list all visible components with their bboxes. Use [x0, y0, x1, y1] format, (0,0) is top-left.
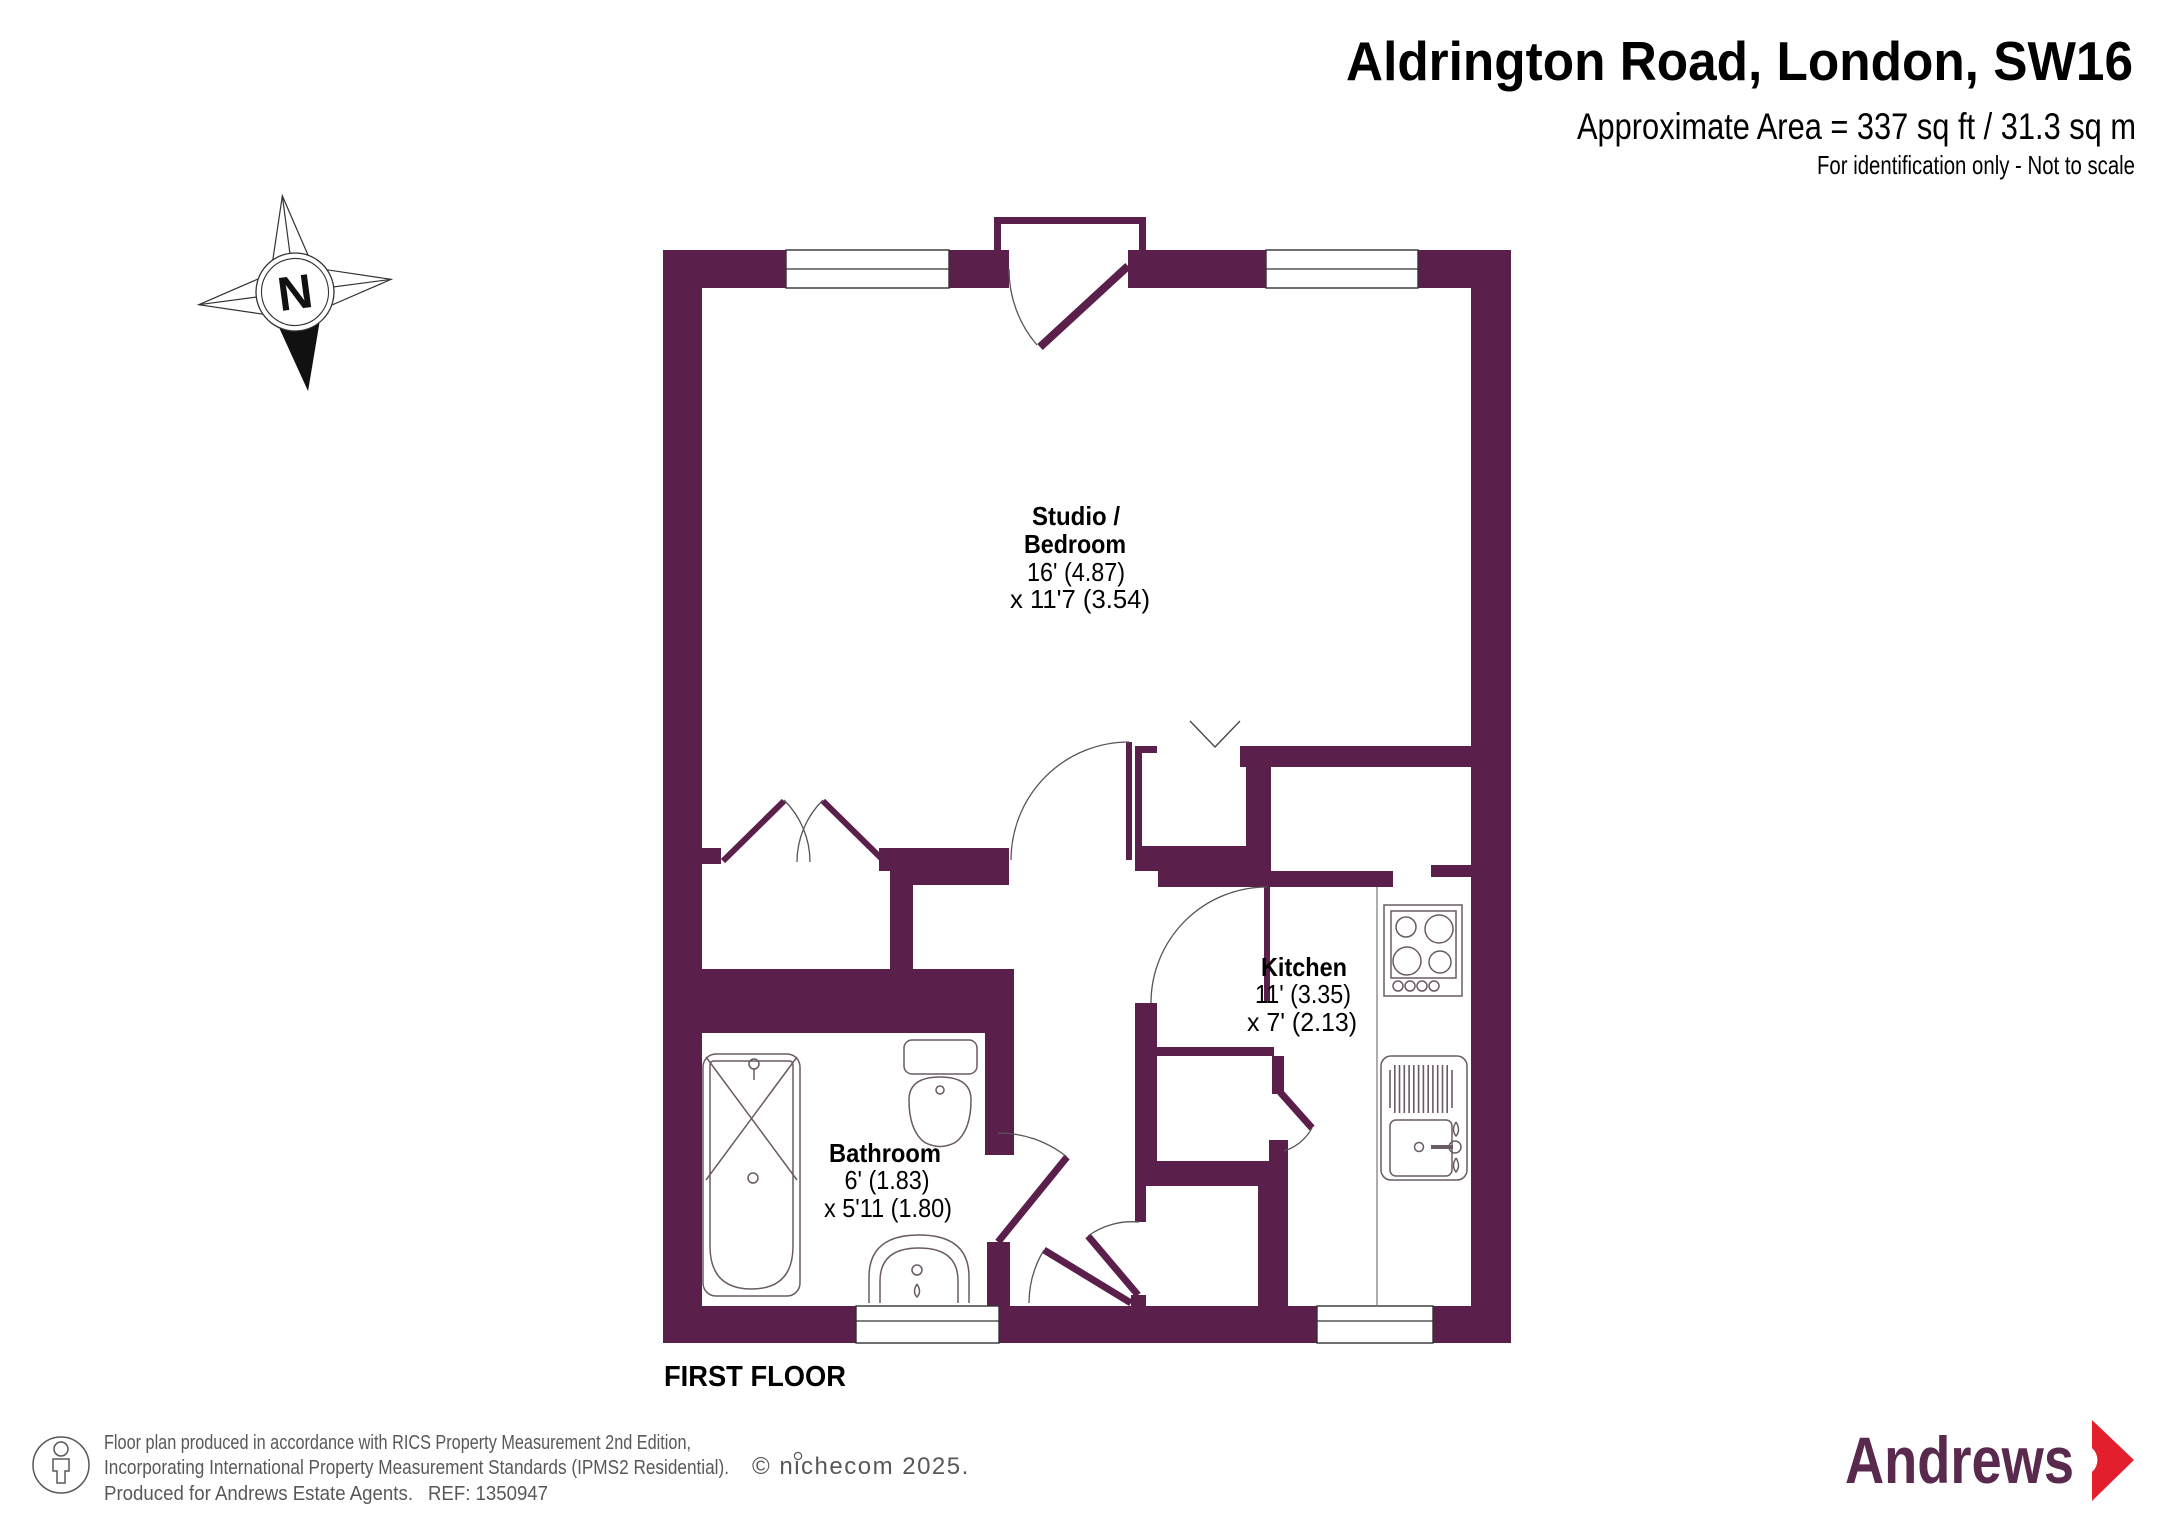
svg-text:REF: 1350947: REF: 1350947	[428, 1483, 548, 1505]
svg-text:Floor plan produced in accorda: Floor plan produced in accordance with R…	[104, 1432, 691, 1454]
svg-text:6' (1.83): 6' (1.83)	[845, 1165, 930, 1195]
svg-text:N: N	[275, 265, 316, 322]
svg-text:Andrews: Andrews	[1845, 1423, 2074, 1497]
svg-text:Incorporating International Pr: Incorporating International Property Mea…	[104, 1457, 729, 1479]
svg-text:Bathroom: Bathroom	[829, 1138, 941, 1168]
svg-text:16' (4.87): 16' (4.87)	[1027, 557, 1125, 587]
svg-text:Produced for Andrews Estate Ag: Produced for Andrews Estate Agents.	[104, 1483, 413, 1505]
svg-text:Aldrington Road, London, SW16: Aldrington Road, London, SW16	[1346, 30, 2133, 92]
svg-text:Studio /: Studio /	[1032, 501, 1120, 531]
svg-text:x 7' (2.13): x 7' (2.13)	[1247, 1007, 1357, 1037]
svg-text:FIRST FLOOR: FIRST FLOOR	[664, 1361, 846, 1393]
svg-text:© nichecom 2025.: © nichecom 2025.	[752, 1453, 970, 1480]
svg-text:Kitchen: Kitchen	[1261, 952, 1347, 982]
svg-text:11' (3.35): 11' (3.35)	[1255, 979, 1351, 1009]
svg-text:Approximate Area = 337 sq ft /: Approximate Area = 337 sq ft / 31.3 sq m	[1577, 106, 2136, 147]
svg-text:Bedroom: Bedroom	[1024, 529, 1126, 559]
svg-text:For identification only - Not: For identification only - Not to scale	[1817, 150, 2135, 180]
svg-text:x 5'11 (1.80): x 5'11 (1.80)	[824, 1193, 952, 1223]
svg-text:x 11'7 (3.54): x 11'7 (3.54)	[1010, 584, 1150, 614]
